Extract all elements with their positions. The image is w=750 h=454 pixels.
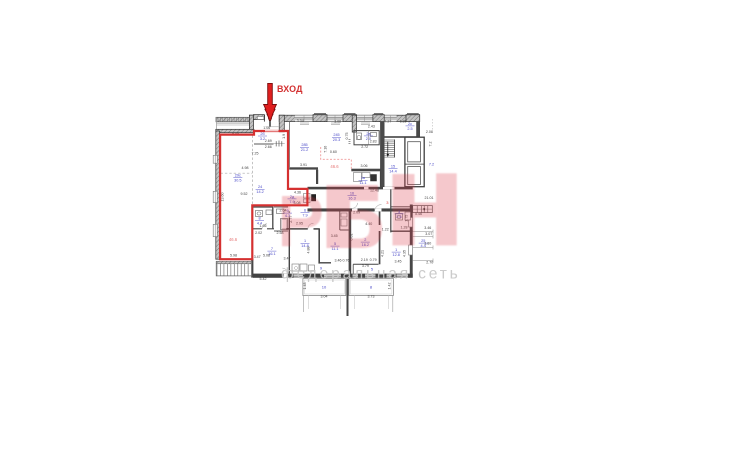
svg-text:3.46: 3.46 (424, 226, 431, 230)
svg-text:5.98: 5.98 (230, 253, 237, 257)
svg-text:30.5: 30.5 (234, 178, 241, 182)
svg-text:1.48: 1.48 (303, 283, 307, 290)
svg-text:3.06: 3.06 (361, 164, 368, 168)
svg-text:6: 6 (304, 209, 306, 213)
svg-text:2.07: 2.07 (384, 209, 391, 213)
svg-text:285: 285 (301, 143, 307, 147)
svg-text:9.52: 9.52 (241, 192, 248, 196)
svg-text:федеральная сеть: федеральная сеть (281, 265, 461, 282)
svg-text:0.60: 0.60 (330, 150, 337, 154)
svg-text:3.45: 3.45 (395, 260, 402, 264)
svg-text:4.35: 4.35 (402, 250, 406, 257)
svg-text:29с: 29с (235, 173, 241, 177)
svg-text:3.47: 3.47 (284, 257, 291, 261)
svg-text:2.19: 2.19 (361, 258, 368, 262)
svg-text:8: 8 (258, 216, 260, 220)
svg-text:2.83: 2.83 (370, 140, 377, 144)
svg-text:1: 1 (304, 239, 306, 243)
svg-text:24: 24 (258, 185, 262, 189)
svg-text:ВХОД: ВХОД (277, 84, 303, 94)
svg-text:1в: 1в (361, 176, 365, 180)
svg-text:1.22: 1.22 (382, 227, 389, 231)
svg-text:2.70: 2.70 (426, 260, 433, 264)
svg-text:2.5: 2.5 (407, 127, 412, 131)
svg-text:3.04: 3.04 (297, 119, 304, 123)
svg-text:7.25: 7.25 (252, 152, 259, 156)
svg-text:7.2: 7.2 (428, 142, 432, 147)
svg-text:4.88: 4.88 (307, 247, 311, 254)
svg-text:0.79: 0.79 (370, 258, 377, 262)
svg-text:3.80: 3.80 (424, 241, 431, 245)
svg-text:2.69: 2.69 (265, 139, 272, 143)
svg-text:4.98: 4.98 (242, 166, 249, 170)
svg-text:3.46: 3.46 (335, 258, 342, 262)
svg-text:1.42: 1.42 (388, 283, 392, 290)
svg-text:1.9: 1.9 (282, 134, 286, 139)
svg-text:14.2: 14.2 (256, 190, 263, 194)
svg-text:2в: 2в (366, 132, 370, 136)
svg-text:2.72: 2.72 (361, 145, 368, 149)
svg-text:20.3: 20.3 (333, 138, 340, 142)
svg-text:7.9: 7.9 (302, 214, 307, 218)
svg-text:2с: 2с (408, 122, 412, 126)
svg-text:7: 7 (271, 247, 273, 251)
svg-text:3.07: 3.07 (425, 232, 432, 236)
svg-text:245: 245 (333, 133, 339, 137)
svg-text:4.21: 4.21 (380, 250, 384, 257)
svg-text:21.01: 21.01 (425, 196, 434, 200)
svg-text:7.2: 7.2 (429, 163, 434, 167)
svg-text:3.91: 3.91 (300, 163, 307, 167)
svg-text:46.6: 46.6 (229, 237, 238, 242)
svg-text:10: 10 (322, 285, 327, 290)
svg-text:4.36: 4.36 (294, 191, 301, 195)
svg-text:5.08: 5.08 (263, 254, 270, 258)
svg-text:2.66: 2.66 (265, 145, 272, 149)
svg-text:2.43: 2.43 (368, 124, 375, 128)
svg-text:46.6: 46.6 (330, 164, 339, 169)
svg-text:3.73: 3.73 (368, 294, 375, 298)
svg-text:3.47: 3.47 (254, 255, 261, 259)
svg-text:15: 15 (391, 164, 395, 168)
svg-text:21.2: 21.2 (301, 148, 308, 152)
svg-text:3.04: 3.04 (321, 294, 328, 298)
svg-text:5.42: 5.42 (260, 277, 267, 281)
svg-text:1.06: 1.06 (263, 126, 270, 130)
svg-text:1: 1 (395, 248, 397, 252)
svg-text:2.02: 2.02 (255, 231, 262, 235)
svg-text:2.08: 2.08 (426, 130, 433, 134)
svg-text:0.75: 0.75 (345, 133, 349, 140)
svg-text:1.39: 1.39 (400, 119, 407, 123)
svg-text:14.4: 14.4 (389, 169, 396, 173)
svg-text:0.76: 0.76 (343, 258, 350, 262)
svg-text:11.1: 11.1 (359, 181, 366, 185)
svg-text:7.16: 7.16 (323, 146, 327, 153)
svg-text:12.8: 12.8 (393, 253, 400, 257)
